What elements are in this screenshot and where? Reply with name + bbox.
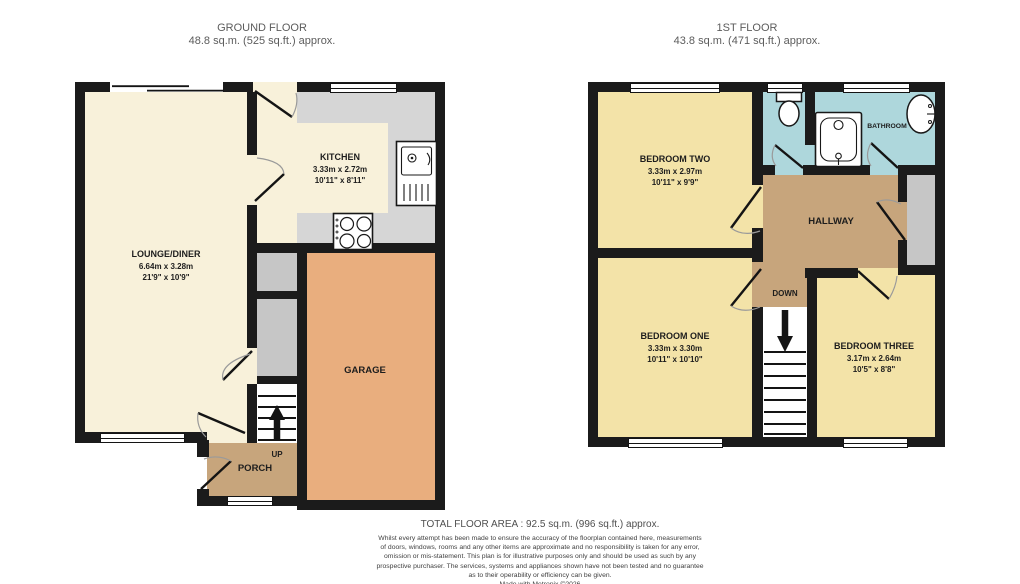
window: [330, 83, 397, 93]
window: [843, 438, 908, 448]
floor-area-text: 48.8 sq.m. (525 sq.ft.) approx.: [189, 35, 336, 48]
window-mullion: [767, 88, 803, 89]
room-dim-imperial: 10'11" x 9'9": [640, 177, 711, 189]
window-mullion: [227, 501, 273, 502]
window-mullion: [330, 88, 397, 89]
room-dim-imperial: 10'5" x 8'8": [834, 364, 914, 376]
staircase-ground: [257, 384, 297, 443]
first-floor-title: 1ST FLOOR 43.8 sq.m. (471 sq.ft.) approx…: [674, 22, 821, 48]
stairs-up-label: UP: [271, 450, 282, 459]
disclaimer: Whilst every attempt has been made to en…: [376, 534, 703, 584]
patio-door-opening: [110, 82, 223, 92]
disclaimer-line: as to their operability or efficiency ca…: [376, 571, 703, 580]
floorplan-canvas: GROUND FLOOR 48.8 sq.m. (525 sq.ft.) app…: [0, 0, 1020, 584]
total-floor-area: TOTAL FLOOR AREA : 92.5 sq.m. (996 sq.ft…: [421, 519, 660, 530]
door-opening: [247, 155, 257, 205]
window: [843, 83, 910, 93]
room-label-lounge-diner: LOUNGE/DINER 6.64m x 3.28m 21'9" x 10'9": [131, 249, 200, 284]
wall: [197, 440, 209, 457]
window-mullion: [630, 88, 720, 89]
room-label-porch: PORCH: [238, 463, 272, 474]
disclaimer-line: Whilst every attempt has been made to en…: [376, 534, 703, 543]
window: [628, 438, 723, 448]
door-opening: [775, 165, 803, 175]
kitchen-counter-right: [388, 123, 435, 243]
room-dim-metric: 3.33m x 2.72m: [313, 164, 367, 176]
wall: [247, 291, 297, 299]
stairs-down-label: DOWN: [772, 289, 797, 298]
window-mullion: [100, 438, 185, 439]
wall: [297, 500, 445, 510]
room-dim-imperial: 10'11" x 10'10": [640, 354, 709, 366]
window-mullion: [843, 88, 910, 89]
room-dim-imperial: 10'11" x 8'11": [313, 175, 367, 187]
room-label-kitchen: KITCHEN 3.33m x 2.72m 10'11" x 8'11": [313, 152, 367, 187]
room-dim-metric: 3.33m x 2.97m: [640, 166, 711, 178]
room-label-bedroom-three: BEDROOM THREE 3.17m x 2.64m 10'5" x 8'8": [834, 341, 914, 376]
window: [767, 83, 803, 93]
window: [100, 433, 185, 443]
window: [227, 496, 273, 506]
ground-floor-title: GROUND FLOOR 48.8 sq.m. (525 sq.ft.) app…: [189, 22, 336, 48]
cupboard-floor: [257, 253, 297, 291]
room-label-bathroom: BATHROOM: [867, 123, 907, 130]
room-label-bedroom-one: BEDROOM ONE 3.33m x 3.30m 10'11" x 10'10…: [640, 331, 709, 366]
room-name: KITCHEN: [313, 152, 367, 164]
staircase-first: [763, 307, 807, 437]
room-label-hallway: HALLWAY: [808, 216, 854, 227]
door-opening: [898, 202, 907, 240]
wall: [805, 92, 815, 145]
wall: [75, 82, 85, 443]
wall: [297, 243, 307, 510]
door-opening: [752, 262, 763, 307]
room-name: BEDROOM TWO: [640, 154, 711, 166]
floor-area-text: 43.8 sq.m. (471 sq.ft.) approx.: [674, 35, 821, 48]
wall: [807, 268, 817, 437]
room-name: LOUNGE/DINER: [131, 249, 200, 261]
wall: [247, 243, 445, 253]
kitchen-counter-top: [297, 92, 435, 123]
room-dim-metric: 3.33m x 3.30m: [640, 343, 709, 355]
room-dim-metric: 6.64m x 3.28m: [131, 261, 200, 273]
room-dim-imperial: 21'9" x 10'9": [131, 272, 200, 284]
room-label-garage: GARAGE: [344, 365, 386, 376]
floor-title-text: 1ST FLOOR: [674, 22, 821, 35]
wall: [595, 248, 762, 258]
garage-floor: [307, 253, 435, 500]
room-name: BEDROOM ONE: [640, 331, 709, 343]
metropix-credit: Made with Metropix ©2026: [376, 580, 703, 584]
door-opening: [752, 185, 763, 228]
disclaimer-line: prospective purchaser. The services, sys…: [376, 562, 703, 571]
room-label-bedroom-two: BEDROOM TWO 3.33m x 2.97m 10'11" x 9'9": [640, 154, 711, 189]
door-opening: [870, 165, 898, 175]
landing-floor: [763, 268, 807, 307]
cupboard-floor: [257, 299, 297, 376]
kitchen-counter-bottom: [297, 213, 388, 243]
window-mullion: [843, 443, 908, 444]
wc-floor: [763, 92, 805, 165]
storage-cupboard-floor: [907, 172, 935, 265]
disclaimer-line: of doors, windows, rooms and any other i…: [376, 543, 703, 552]
room-dim-metric: 3.17m x 2.64m: [834, 353, 914, 365]
window-mullion: [628, 443, 723, 444]
wall: [247, 82, 257, 443]
window: [630, 83, 720, 93]
room-name: BEDROOM THREE: [834, 341, 914, 353]
disclaimer-line: omission or mis-statement. This plan is …: [376, 552, 703, 561]
floor-title-text: GROUND FLOOR: [189, 22, 336, 35]
wall: [588, 82, 598, 447]
door-opening: [253, 82, 297, 92]
wall: [898, 265, 945, 275]
wall: [435, 82, 445, 510]
door-opening: [247, 348, 257, 384]
